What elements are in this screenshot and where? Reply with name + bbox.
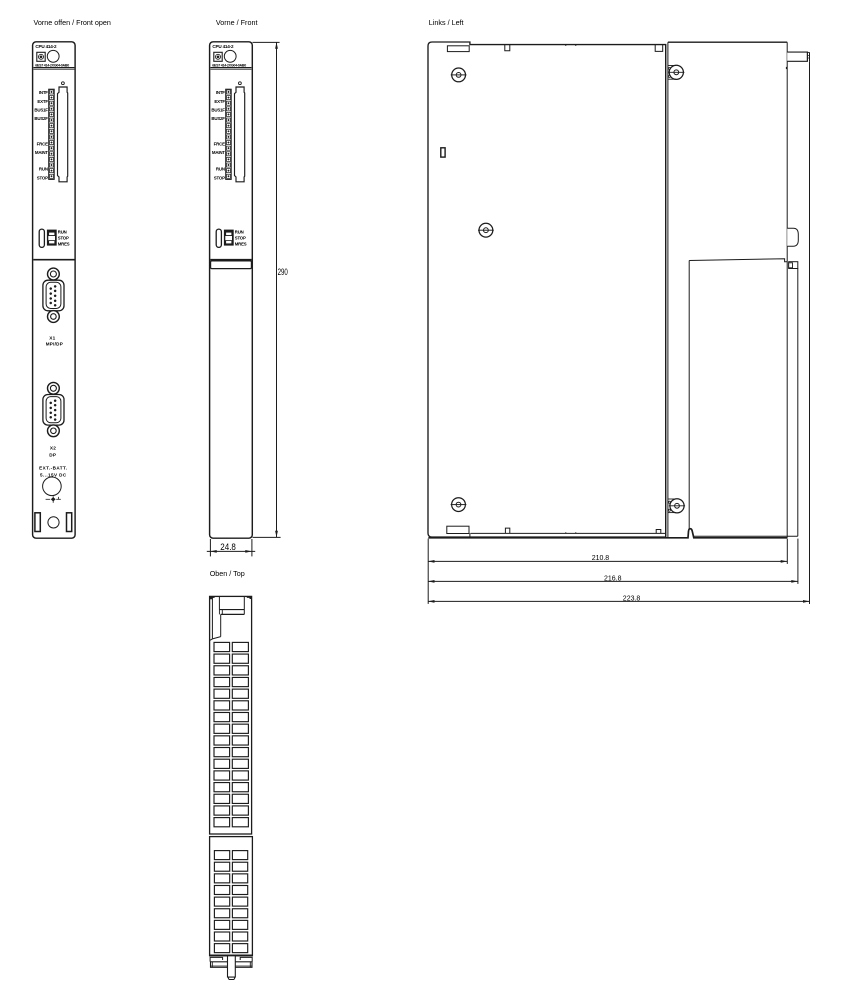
svg-text:6ES7 414-2XG04-0AB0: 6ES7 414-2XG04-0AB0 <box>35 64 69 68</box>
svg-text:BUS2F: BUS2F <box>34 116 48 121</box>
svg-text:CPU 414-2: CPU 414-2 <box>35 44 57 49</box>
svg-text:STOP: STOP <box>214 175 225 180</box>
svg-text:MRES: MRES <box>235 241 247 246</box>
svg-text:DP: DP <box>49 453 56 458</box>
svg-text:223.8: 223.8 <box>623 595 641 602</box>
svg-text:RUN: RUN <box>235 229 244 234</box>
svg-text:BUS1F: BUS1F <box>211 107 225 112</box>
svg-text:BUS1F: BUS1F <box>34 107 48 112</box>
svg-text:INTF: INTF <box>216 90 225 95</box>
svg-text:24.8: 24.8 <box>220 542 236 552</box>
svg-text:RUN: RUN <box>216 167 225 172</box>
svg-text:STOP: STOP <box>37 175 48 180</box>
svg-text:X1: X1 <box>49 336 55 341</box>
svg-text:X2: X2 <box>50 445 56 450</box>
svg-text:6ES7 414-2XG04-0AB0: 6ES7 414-2XG04-0AB0 <box>212 64 246 68</box>
svg-text:STOP: STOP <box>58 235 69 240</box>
svg-text:210.8: 210.8 <box>592 555 610 562</box>
svg-text:MAINT: MAINT <box>212 150 225 155</box>
svg-text:MAINT: MAINT <box>35 150 48 155</box>
svg-text:RUN: RUN <box>39 167 48 172</box>
svg-text:216.8: 216.8 <box>604 575 622 582</box>
svg-text:Vorne / Front: Vorne / Front <box>216 18 258 27</box>
svg-text:BUS2F: BUS2F <box>211 116 225 121</box>
svg-text:MRES: MRES <box>58 241 70 246</box>
svg-text:EXT.-BATT.: EXT.-BATT. <box>39 465 67 470</box>
svg-text:Oben / Top: Oben / Top <box>210 569 245 578</box>
svg-text:STOP: STOP <box>235 235 246 240</box>
svg-text:EXTF: EXTF <box>37 99 48 104</box>
svg-text:Links / Left: Links / Left <box>429 18 464 27</box>
svg-text:Vorne offen / Front open: Vorne offen / Front open <box>34 18 111 27</box>
svg-text:INTF: INTF <box>39 90 48 95</box>
svg-text:EXTF: EXTF <box>214 99 225 104</box>
svg-text:FRCE: FRCE <box>37 142 48 147</box>
svg-text:290: 290 <box>278 267 288 277</box>
svg-text:RUN: RUN <box>58 229 67 234</box>
svg-text:CPU 414-2: CPU 414-2 <box>212 44 234 49</box>
svg-text:FRCE: FRCE <box>214 142 225 147</box>
svg-text:MPI/DP: MPI/DP <box>46 342 63 347</box>
